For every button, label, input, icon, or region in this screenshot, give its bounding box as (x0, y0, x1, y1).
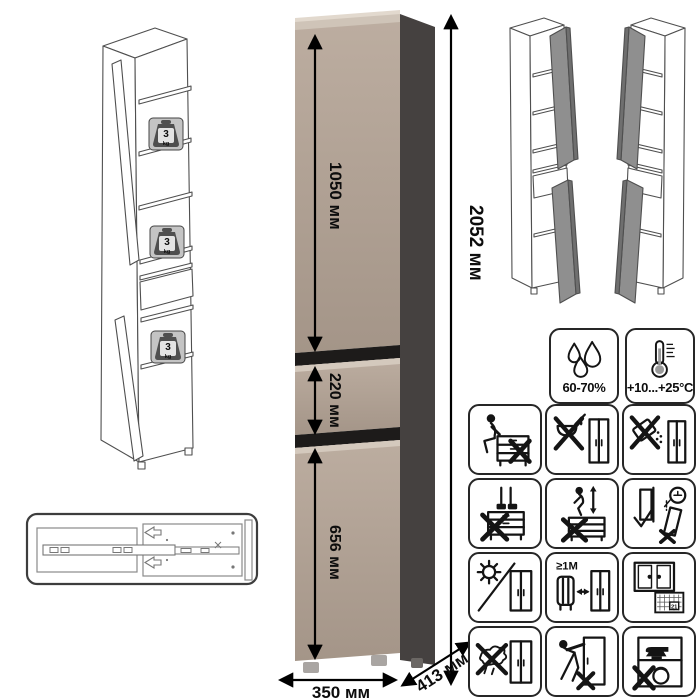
ventilate-room-icon: 21 (629, 558, 689, 618)
no-standing-icon (475, 484, 535, 544)
dimension-label-total-height: 2052 мм (465, 205, 486, 281)
no-standing-card (468, 478, 542, 549)
cabinet-foot (371, 655, 387, 666)
no-liquids-card (545, 404, 619, 475)
svg-text:kg: kg (164, 249, 170, 255)
drawer-slide-diagram (25, 512, 260, 587)
humidity-label: 60-70% (562, 381, 605, 394)
svg-text:3: 3 (163, 129, 169, 140)
no-wet-cloth-card (468, 626, 542, 697)
no-abrasives-icon (629, 410, 689, 470)
anchor-to-wall-icon (629, 484, 689, 544)
temperature-label: +10...+25°C (627, 381, 693, 394)
mirrored-cabinet-variant (615, 18, 685, 303)
shelf-load-weight-icon: 3 kg (150, 226, 184, 258)
cabinet-lower-door (295, 440, 400, 661)
temperature-card: +10...+25°C (625, 328, 695, 404)
dimension-label-width: 350 мм (312, 683, 370, 700)
ventilate-room-card: 21 (622, 552, 696, 623)
no-heavy-items-icon (629, 632, 689, 692)
cabinet-side-panel (400, 14, 435, 665)
no-sitting-icon (475, 410, 535, 470)
anchor-to-wall-card (622, 478, 696, 549)
no-wet-cloth-icon (475, 632, 535, 692)
cabinet-foot (411, 658, 423, 668)
no-dragging-card (545, 626, 619, 697)
keep-1m-from-heat-icon: ≥1M (552, 558, 612, 618)
no-dragging-icon (552, 632, 612, 692)
anvil-glyph (646, 647, 669, 659)
no-heavy-items-card (622, 626, 696, 697)
calendar-day-label: 21 (671, 604, 678, 610)
heat-distance-label: ≥1M (556, 560, 578, 572)
cabinet-render: 1050 мм 220 мм 656 мм 2052 мм 350 мм 413… (273, 3, 493, 700)
conditions-row: 60-70% +10...+25°C (549, 328, 695, 404)
no-direct-sunlight-icon (475, 558, 535, 618)
keep-1m-from-heat-card: ≥1M (545, 552, 619, 623)
shelf-load-weight-icon: 3 kg (149, 118, 183, 150)
product-spec-sheet: 3 kg 3 kg 3 kg (0, 0, 700, 700)
no-direct-sunlight-card (468, 552, 542, 623)
no-sitting-card (468, 404, 542, 475)
shelf-load-weight-icon: 3 kg (151, 331, 185, 363)
svg-text:kg: kg (165, 354, 171, 360)
no-liquids-icon (552, 410, 612, 470)
no-climbing-card (545, 478, 619, 549)
svg-text:3: 3 (164, 237, 170, 248)
dimension-label-drawer: 220 мм (326, 373, 343, 428)
no-climbing-icon (552, 484, 612, 544)
cabinet-foot (303, 662, 319, 673)
svg-text:3: 3 (165, 342, 171, 353)
svg-text:kg: kg (163, 141, 169, 147)
dimension-label-lower-door: 656 мм (326, 525, 343, 580)
dimension-label-upper-door: 1050 мм (326, 162, 345, 230)
humidity-icon (558, 338, 610, 380)
open-cabinet-line-drawing: 3 kg 3 kg 3 kg (55, 20, 245, 475)
calendar-glyph: 21 (655, 592, 683, 612)
door-variants-drawing (500, 12, 695, 312)
cabinet-upper-door (295, 22, 400, 353)
humidity-card: 60-70% (549, 328, 619, 404)
no-abrasives-card (622, 404, 696, 475)
kettlebell-glyph (653, 667, 668, 683)
warning-icons-grid: ≥1M (468, 404, 696, 697)
temperature-icon (634, 338, 686, 380)
